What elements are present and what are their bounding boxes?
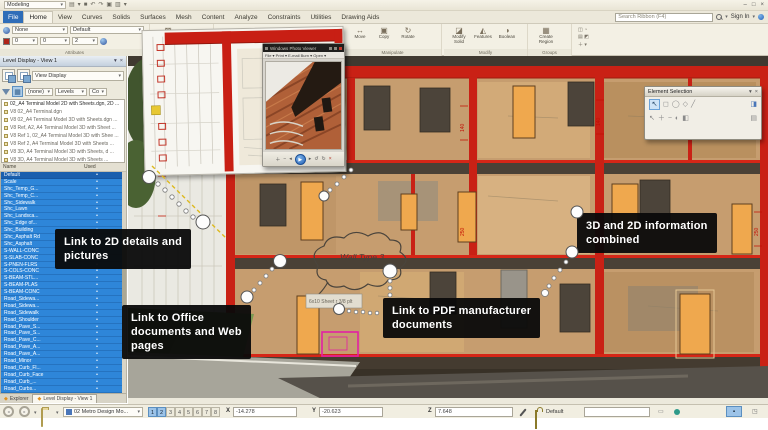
ribbon-tool[interactable]: ▦ Create Region [534, 26, 558, 45]
level-row[interactable]: Road_Pave_A... • [1, 344, 126, 351]
dialog-title: Element Selection [648, 89, 692, 95]
rotate-left-icon[interactable]: ↺ [314, 156, 318, 162]
level-row[interactable]: Road_Curbs... • [1, 386, 126, 393]
maximize-icon[interactable] [334, 47, 337, 50]
ribbon-tabs: FileHomeViewCurvesSolidsSurfacesMeshCont… [3, 11, 384, 23]
level-row[interactable]: Road_Pave_A... • [1, 351, 126, 358]
message-field [584, 407, 650, 417]
tree-item-icon [4, 158, 8, 162]
ribbon-group-manipulate: ↔ Move ▣ Copy ↻ Rotate Manipulate [344, 24, 442, 56]
level-list: Default • Scale • Shc_Temp_G... • S [0, 172, 126, 393]
levels-select[interactable]: Levels▾ [55, 88, 87, 96]
ribbon-tab-row: FileHomeViewCurvesSolidsSurfacesMeshCont… [0, 11, 768, 24]
panel-filter-toolbar: ▦ (none)▾ Levels▾ Co▾ [0, 84, 126, 99]
group-label: Groups [528, 49, 571, 56]
level-row[interactable]: Road_Curb_Face • [1, 372, 126, 379]
panel-title: Level Display - View 1 [3, 58, 57, 64]
tree-item[interactable]: V8 Ref 1, 02_A4 Terminal Model 3D with S… [2, 132, 124, 140]
next-view-button[interactable]: ▸ [19, 406, 30, 417]
transparency-icon[interactable] [100, 38, 107, 45]
ribbon-tab[interactable]: Solids [107, 11, 135, 23]
level-grid-icon[interactable]: ▦ [12, 86, 23, 97]
maximize-button[interactable]: □ [752, 2, 756, 8]
ribbon-tool[interactable]: ↔ Move [348, 26, 372, 40]
fence-status-icon[interactable]: ▭ [658, 408, 664, 415]
selection-count-cell[interactable]: ▪ [726, 406, 742, 417]
view-group-select[interactable]: 02 Metro Design Mo... ▾ [63, 407, 143, 417]
ribbon-group-attributes: None▾ Default▾ 0▾ 0▾ 2▾ Attributes [0, 24, 150, 56]
ribbon-tab[interactable]: Constraints [263, 11, 306, 23]
panel-toolbar: View Display▾ [0, 67, 126, 84]
x-coordinate-field[interactable]: -14.278 [233, 407, 297, 417]
callout-2d-details: Link to 2D details and pictures [55, 229, 191, 269]
title-bar: Modeling ▾ ▤▾■↶↷▣▥▾ – □ × [0, 0, 768, 11]
element-class-select[interactable]: None▾ [12, 26, 68, 34]
level-row[interactable]: Road_Pave_S... • [1, 324, 126, 331]
new-selection-icon[interactable]: ↖ [649, 114, 655, 123]
tree-item[interactable]: V8 3D, A4 Terminal Model 3D with Sheets … [2, 156, 124, 163]
view-group-icon [66, 409, 72, 415]
tree-item-icon [4, 110, 8, 114]
level-row[interactable]: Road_Sidewa... • [1, 303, 126, 310]
view-toggle[interactable]: 8 [211, 407, 220, 417]
callout-pdf-documents: Link to PDF manufacturer documents [383, 298, 540, 338]
level-row[interactable]: Shc_Temp_C... • [1, 193, 126, 200]
element-selection-dialog[interactable]: Element Selection ▾ × ↖ ◻ ◯ ◇ ╱ ◨ ↖ ＋ − … [644, 86, 762, 140]
quick-access-icon[interactable]: ▥ [115, 1, 121, 10]
window-controls: – □ × [744, 2, 764, 8]
svg-text:140: 140 [596, 117, 602, 126]
quick-access-icon[interactable]: ↷ [98, 1, 103, 10]
ribbon-tab[interactable]: Mesh [171, 11, 197, 23]
link-tooltip-text: 6x10 Sheet r 3/8 plt [309, 299, 353, 305]
invert-selection-icon[interactable]: ◐ [675, 114, 679, 123]
element-class-icon [3, 27, 10, 34]
level-row[interactable]: Shc_Edge of... • [1, 220, 126, 227]
chevron-down-icon[interactable]: ▾ [725, 14, 728, 20]
view-toggle[interactable]: 4 [175, 407, 184, 417]
ribbon-tool[interactable]: ◪ Modify Solid [447, 26, 471, 45]
ribbon-tool[interactable]: ◑ Boolean [495, 26, 519, 45]
ribbon-tab[interactable]: Content [197, 11, 230, 23]
group-label: Manipulate [344, 49, 441, 56]
level-list-header[interactable]: Name Used [0, 163, 126, 172]
slideshow-button[interactable]: ▶ [295, 154, 306, 165]
file-tree: 02_A4 Terminal Model 2D with Sheets.dgn,… [1, 99, 125, 163]
sign-in-link[interactable]: Sign In [731, 14, 750, 20]
next-icon[interactable]: ▸ [309, 156, 312, 162]
tree-item[interactable]: V8 Ref, A2, A4 Terminal Model 3D with Sh… [2, 124, 124, 132]
level-row[interactable]: Shc_Temp_G... • [1, 186, 126, 193]
columns-select[interactable]: Co▾ [89, 88, 107, 96]
shape-select-icon[interactable]: ◯ [672, 100, 680, 109]
selection-tool-icon[interactable]: ＋ ▾ [578, 41, 589, 48]
panel-tab[interactable]: ◆ Level Display - View 1 [32, 394, 97, 403]
view-toggle[interactable]: 6 [193, 407, 202, 417]
callout-office-documents: Link to Office documents and Web pages [122, 305, 251, 359]
photo-viewer-title-bar[interactable]: Windows Photo Viewer [263, 44, 344, 52]
view-toggles: 12345678 [148, 407, 220, 417]
clear-selection-icon[interactable]: ◧ [682, 114, 689, 123]
close-icon[interactable] [339, 47, 342, 50]
level-row[interactable]: Road_Shoulder • [1, 317, 126, 324]
ribbon-tab[interactable]: Curves [77, 11, 108, 23]
active-level-select[interactable]: Default▾ [70, 26, 144, 34]
z-label: Z [428, 408, 432, 414]
panel-tab-icon: ◆ [4, 396, 8, 402]
photo-content [265, 61, 342, 150]
ribbon-tool[interactable]: ↻ Rotate [396, 26, 420, 40]
application-window: Modeling ▾ ▤▾■↶↷▣▥▾ – □ × FileHomeViewCu… [0, 0, 768, 430]
subtract-selection-icon[interactable]: − [668, 114, 672, 123]
panel-bottom-tabs: ◆ Explorer ◆ Level Display - View 1 [0, 393, 126, 403]
color-select[interactable]: 0▾ [12, 37, 38, 45]
quick-access-icon[interactable]: ▣ [106, 1, 112, 10]
tree-item-icon [4, 142, 8, 146]
level-row[interactable]: Road_Pave_S... • [1, 330, 126, 337]
tree-item[interactable]: V8 3D, A4 Terminal Model 3D with Sheets,… [2, 148, 124, 156]
workflow-select[interactable]: Modeling ▾ [4, 1, 66, 9]
dialog-title-bar[interactable]: Element Selection ▾ × [645, 87, 761, 97]
ribbon-tool[interactable]: ▣ Copy [372, 26, 396, 40]
status-bar: ◂ ▸ ▾ ▾ 02 Metro Design Mo... ▾ 12345678… [0, 404, 768, 418]
tree-item-icon [4, 118, 8, 122]
tree-item[interactable]: V8 02_A4 Terminal Model 3D with Sheets.d… [2, 116, 124, 124]
level-row[interactable]: Shc_Lawn • [1, 206, 126, 213]
photo-viewer-controls: ＋ − ◂ ▶ ▸ ↺ ↻ × [263, 152, 344, 166]
group-label: Modify [444, 49, 527, 56]
search-icon[interactable] [716, 14, 722, 20]
tree-item[interactable]: V8 02_A4 Terminal.dgn [2, 108, 124, 116]
dialog-status-icon[interactable]: ◳ [752, 408, 758, 415]
ribbon-tab[interactable]: Analyze [229, 11, 262, 23]
quick-access-icon[interactable]: ▾ [78, 1, 81, 10]
view-toggle[interactable]: 3 [166, 407, 175, 417]
tree-item-icon [4, 150, 8, 154]
add-selection-icon[interactable]: ＋ [658, 114, 665, 123]
active-color-swatch[interactable] [3, 38, 10, 45]
rotate-right-icon[interactable]: ↻ [322, 156, 326, 162]
level-row[interactable]: Scale • [1, 179, 126, 186]
dialog-pin-icon[interactable]: ▾ [749, 89, 752, 95]
close-button[interactable]: × [760, 2, 764, 8]
line-style-select[interactable]: 0▾ [40, 37, 70, 45]
level-row[interactable]: Road_Minor • [1, 358, 126, 365]
ribbon-tab[interactable]: Home [23, 11, 52, 23]
tree-item[interactable]: 02_A4 Terminal Model 2D with Sheets.dgn,… [2, 100, 124, 108]
quick-access-icon[interactable]: ▾ [124, 1, 127, 10]
chevron-down-icon[interactable]: ▾ [752, 14, 755, 20]
tree-item[interactable]: V8 Ref 2, A4 Terminal Model 3D with Shee… [2, 140, 124, 148]
level-row[interactable]: Road_Curb_... • [1, 379, 126, 386]
expand-dialog-icon[interactable]: ▤ [750, 114, 757, 123]
active-level-indicator[interactable]: Default [546, 409, 563, 415]
level-row[interactable]: Road_Sidewa... • [1, 296, 126, 303]
quick-access-icon[interactable]: ■ [84, 1, 88, 10]
level-row[interactable]: S-COLS-CONC • [1, 268, 126, 275]
selection-tool-icon[interactable]: ◫ ◔ [578, 27, 589, 33]
snap-status-icon[interactable] [674, 409, 680, 415]
ribbon-group-modify: ◪ Modify Solid ◭ Features ◑ Boolean Modi… [444, 24, 528, 56]
level-row[interactable]: Road_Curb_Fl... • [1, 365, 126, 372]
z-coordinate-field[interactable]: 7.648 [435, 407, 513, 417]
level-row[interactable]: Road_Sidewalk • [1, 310, 126, 317]
selection-method-row: ↖ ＋ − ◐ ◧ ▤ [645, 112, 761, 125]
workflow-label: Modeling [7, 2, 29, 8]
ribbon-tab[interactable]: View [53, 11, 77, 23]
filter-select[interactable]: (none)▾ [25, 88, 53, 96]
level-row[interactable]: S-BEAM-CONC • [1, 289, 126, 296]
level-row[interactable]: Shc_Landsca... • [1, 213, 126, 220]
level-row[interactable]: Shc_Sidewalk • [1, 200, 126, 207]
line-weight-select[interactable]: 2▾ [72, 37, 98, 45]
panel-pin-icon[interactable]: ▾ [114, 58, 117, 64]
quick-access-icon[interactable]: ▤ [69, 1, 75, 10]
minimize-icon[interactable] [329, 47, 332, 50]
svg-text:250: 250 [754, 227, 760, 236]
ribbon-tab[interactable]: Drawing Aids [336, 11, 384, 23]
panel-close-icon[interactable]: × [120, 58, 123, 64]
select-by-attributes-icon[interactable]: ◨ [750, 100, 757, 109]
quick-access-icon[interactable]: ↶ [90, 1, 95, 10]
photo-viewer-window[interactable]: Windows Photo Viewer File ▾ Print ▾ E-ma… [262, 43, 345, 167]
selection-mode-row: ↖ ◻ ◯ ◇ ╱ ◨ [645, 97, 761, 112]
view-group-folder-icon[interactable] [41, 408, 43, 427]
delete-icon[interactable]: × [329, 156, 332, 162]
previous-view-button[interactable]: ◂ [3, 406, 14, 417]
callout-3d-2d-combined: 3D and 2D information combined [577, 213, 717, 253]
chevron-down-icon[interactable]: ▾ [34, 410, 37, 416]
filter-funnel-icon[interactable] [2, 89, 10, 95]
panel-tab-icon: ◆ [37, 396, 41, 402]
view-toggle[interactable]: 2 [157, 407, 166, 417]
view-toggle[interactable]: 7 [202, 407, 211, 417]
panel-tab[interactable]: ◆ Explorer [0, 394, 32, 403]
ribbon-tab[interactable]: Utilities [305, 11, 336, 23]
ribbon-group-selection: ◫ ◔▤ ◩＋ ▾ [574, 24, 604, 56]
view-display-select[interactable]: View Display▾ [32, 71, 124, 81]
y-label: Y [312, 408, 316, 414]
previous-icon[interactable]: ◂ [289, 156, 292, 162]
x-label: X [226, 408, 230, 414]
group-label: Attributes [0, 49, 149, 56]
ribbon: None▾ Default▾ 0▾ 0▾ 2▾ Attributes [0, 24, 768, 56]
individual-select-icon[interactable]: ↖ [649, 99, 660, 110]
apply-to-selected-icon[interactable] [17, 69, 30, 82]
search-input[interactable] [615, 13, 713, 22]
svg-text:250: 250 [460, 227, 466, 236]
ribbon-tool[interactable]: ◭ Features [471, 26, 495, 45]
chevron-down-icon[interactable]: ▾ [56, 410, 59, 416]
photo-viewer-menu[interactable]: File ▾ Print ▾ E-mail Burn ▾ Open ▾ [263, 52, 344, 59]
app-icon [265, 47, 268, 50]
wall-type-label: Wall Type 3 [340, 252, 384, 262]
dialog-close-icon[interactable]: × [755, 89, 758, 95]
ribbon-tab[interactable]: Surfaces [135, 11, 171, 23]
apply-to-open-views-icon[interactable] [2, 69, 15, 82]
ribbon-group-groups: ▦ Create Region Groups [528, 24, 572, 56]
lock-icon[interactable] [535, 410, 537, 429]
tree-item-icon [4, 126, 8, 130]
level-list-scrollbar[interactable] [122, 172, 126, 393]
block-select-icon[interactable]: ◻ [663, 100, 669, 109]
photo-viewer-title: Windows Photo Viewer [270, 46, 327, 51]
level-row[interactable]: S-BEAM-PLAS • [1, 282, 126, 289]
zoom-in-icon[interactable]: ＋ [275, 156, 280, 163]
minimize-button[interactable]: – [744, 2, 747, 8]
view-toggle[interactable]: 1 [148, 407, 157, 417]
y-coordinate-field[interactable]: -20.623 [319, 407, 383, 417]
circle-select-icon[interactable]: ◇ [683, 100, 688, 109]
tree-item-icon [4, 134, 8, 138]
level-row[interactable]: Road_Pave_C... • [1, 337, 126, 344]
zoom-out-icon[interactable]: − [283, 156, 286, 162]
selection-tool-icon[interactable]: ▤ ◩ [578, 34, 589, 40]
pencil-icon[interactable] [519, 408, 526, 416]
panel-title-bar[interactable]: Level Display - View 1 ▾ × [0, 56, 126, 67]
level-row[interactable]: Default • [1, 172, 126, 179]
svg-text:140: 140 [460, 123, 466, 132]
connect-account-icon[interactable] [758, 14, 764, 20]
line-select-icon[interactable]: ╱ [691, 100, 695, 109]
quick-access-toolbar: ▤▾■↶↷▣▥▾ [69, 1, 127, 10]
ribbon-tab[interactable]: File [3, 11, 23, 23]
tab-row-right: ▾ Sign In ▾ [615, 11, 768, 23]
tree-item-icon [4, 102, 8, 106]
chevron-down-icon: ▾ [60, 2, 63, 8]
level-row[interactable]: S-BEAM-STL... • [1, 275, 126, 282]
view-toggle[interactable]: 5 [184, 407, 193, 417]
